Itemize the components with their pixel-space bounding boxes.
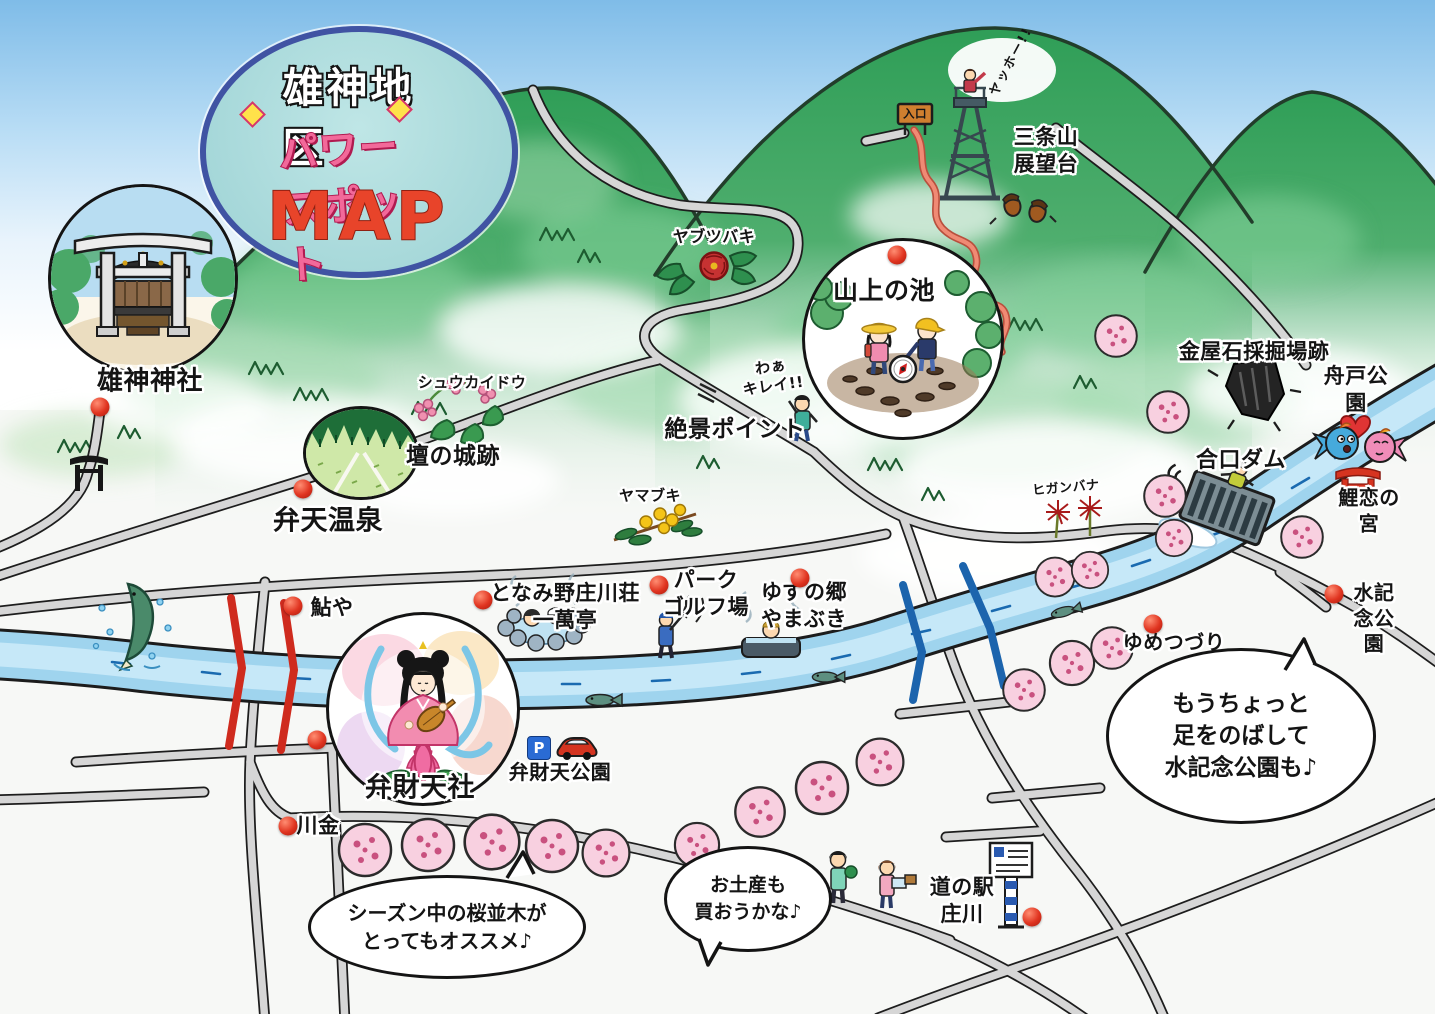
ogami-shrine-illustration — [48, 184, 238, 374]
title-badge: 雄神地区 パワースポット MAP — [200, 26, 518, 278]
label-zekkei-point: 絶景ポイント — [665, 415, 806, 444]
marker-yumetsuzuri — [1144, 615, 1163, 634]
marker-yuzu-no-sato — [791, 569, 810, 588]
label-funato-park: 舟戸公園 — [1317, 363, 1396, 417]
mizu-speech-bubble: もうちょっと 足をのばして 水記念公園も♪ — [1106, 648, 1376, 824]
sanjo-pond-illustration — [802, 238, 1004, 440]
label-entrance-sign: 入口 — [903, 107, 927, 122]
parking-car-icon — [558, 738, 597, 760]
marker-mizu-kinen-park — [1325, 585, 1344, 604]
label-mizu-kinen-park: 水記念公園 — [1344, 581, 1405, 658]
marker-tonamino-shogawaso — [474, 591, 493, 610]
label-ayuya: 鮎や — [311, 595, 354, 622]
label-sanjo-pond: 山上の池 — [833, 275, 935, 307]
omiyage-bubble-text: お土産も 買おうかな♪ — [694, 872, 801, 925]
label-yuzu-no-sato: ゆずの郷 やまぶき — [761, 579, 847, 633]
label-yamabuki-flower: ヤマブキ — [619, 486, 681, 505]
marker-sanjo-pond — [888, 246, 907, 265]
marker-kawakin — [279, 817, 298, 836]
label-benzaiten-shrine: 弁財天社 — [365, 772, 475, 807]
label-kawakin: 川金 — [297, 813, 340, 840]
sakura-bubble-text: シーズン中の桜並木が とってもオススメ♪ — [348, 899, 547, 955]
marker-benten-onsen — [294, 480, 313, 499]
label-sanjozan-observatory: 三条山 展望台 — [1014, 124, 1079, 178]
label-koikoi-shrine: 鯉恋の宮 — [1336, 485, 1402, 536]
label-dan-castle: 壇の城跡 — [406, 442, 500, 471]
label-ogami-shrine: 雄神神社 — [97, 365, 203, 398]
label-park-golf: パーク ゴルフ場 — [663, 567, 749, 621]
sakura-bubble-tail — [505, 849, 537, 879]
marker-benzaiten-shrine — [308, 731, 327, 750]
marker-ogami-shrine — [91, 398, 110, 417]
title-map-word: MAP — [267, 178, 450, 255]
compass — [890, 356, 916, 382]
label-benzaiten-park: 弁財天公園 — [509, 760, 612, 786]
mizu-bubble-tail — [1282, 636, 1318, 672]
sakura-speech-bubble: シーズン中の桜並木が とってもオススメ♪ — [308, 875, 586, 979]
power-spot-map: 雄神地区 パワースポット MAP 雄神神社 弁天温泉 壇の城跡 シュウカイドウ … — [0, 0, 1435, 1014]
omiyage-bubble-tail — [695, 938, 725, 968]
label-yabutsubaki: ヤブツバキ — [673, 227, 756, 247]
marker-ayuya — [284, 597, 303, 616]
mizu-bubble-text: もうちょっと 足をのばして 水記念公園も♪ — [1165, 688, 1318, 785]
label-shukaido: シュウカイドウ — [418, 373, 527, 392]
dan-castle-illustration — [303, 406, 419, 500]
label-benten-onsen: 弁天温泉 — [273, 505, 383, 540]
marker-michinoeki-shogawa — [1023, 908, 1042, 927]
parking-sign: P — [527, 736, 551, 760]
marker-park-golf — [650, 576, 669, 595]
label-gouguchi-dam: 合口ダム — [1196, 447, 1286, 475]
label-tonamino-shogawaso: となみ野庄川荘 一萬亭 — [490, 580, 640, 634]
label-michinoeki-shogawa: 道の駅 庄川 — [930, 874, 995, 928]
label-kanaya-quarry: 金屋石採掘場跡 — [1179, 339, 1330, 366]
parking-letter: P — [534, 739, 545, 757]
omiyage-speech-bubble: お土産も 買おうかな♪ — [664, 846, 832, 952]
